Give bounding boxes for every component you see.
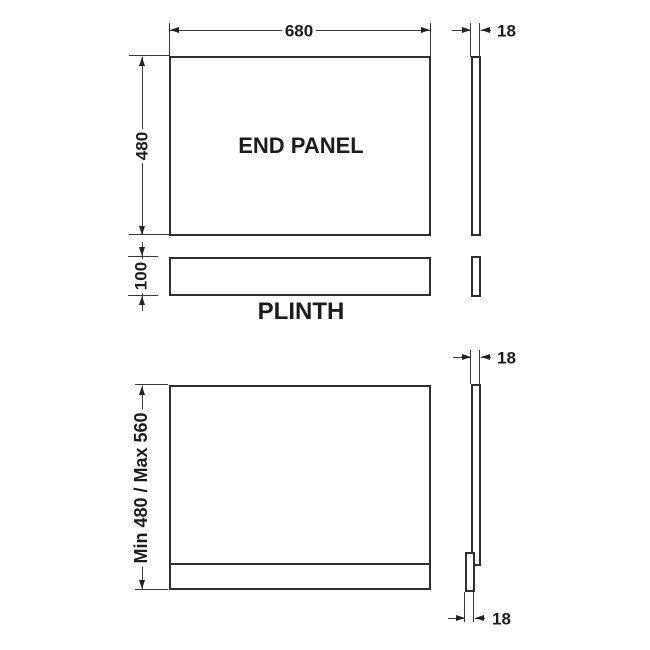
adjustable-panel-plinth-divider-line	[170, 563, 430, 565]
dim-plinth-arrow-bottom	[139, 296, 145, 305]
dim-range-arrow-bottom	[139, 580, 145, 589]
dim-height-arrow-top	[139, 57, 145, 66]
dim-plinth-thickness-arrow-left	[456, 615, 465, 621]
dim-plinth-thickness-arrow-right	[475, 615, 484, 621]
end-panel-technical-drawing: END PANEL 680 480 18 PLINTH 100 Min 480 …	[0, 0, 650, 650]
dim-thickness-label: 18	[494, 22, 519, 41]
plinth-front-rect	[169, 257, 431, 296]
plinth-side-rect	[471, 256, 481, 297]
adjustable-plinth-side-rect	[465, 552, 475, 592]
dim-range-ext-tick-bottom	[135, 589, 168, 590]
plinth-label: PLINTH	[258, 300, 345, 324]
end-panel-side-rect	[471, 56, 481, 236]
dim-width-label: 680	[282, 22, 316, 41]
dim-width-ext-line-right	[430, 23, 431, 56]
dim-thickness-arrow-left	[462, 27, 471, 33]
dim-height-label: 480	[133, 129, 152, 163]
dim-height-arrow-bottom	[139, 226, 145, 235]
adjustable-panel-side-rect	[471, 384, 481, 566]
adjustable-panel-front-rect	[169, 385, 431, 590]
dim-height-ext-tick-top	[129, 55, 169, 56]
dim-panel-thickness-arrow-right	[481, 354, 490, 360]
dim-thickness-ext-right	[479, 23, 480, 57]
dim-thickness-arrow-right	[481, 27, 490, 33]
dim-panel-thickness-ext-right	[479, 350, 480, 384]
dim-width-arrow-left	[170, 27, 179, 33]
dim-width-arrow-right	[421, 27, 430, 33]
end-panel-label: END PANEL	[238, 135, 364, 157]
dim-panel-thickness-label: 18	[494, 349, 519, 368]
dim-plinth-ext-tick-top	[128, 256, 158, 257]
dim-panel-thickness-arrow-left	[462, 354, 471, 360]
dim-plinth-arrow-top	[139, 247, 145, 256]
dim-plinth-height-label: 100	[132, 259, 151, 293]
dim-range-label: Min 480 / Max 560	[131, 409, 151, 566]
dim-plinth-thickness-ext-right	[473, 592, 474, 622]
dim-plinth-thickness-label: 18	[489, 610, 514, 629]
dim-range-ext-tick-top	[135, 384, 168, 385]
dim-range-arrow-top	[139, 386, 145, 395]
dim-height-ext-tick-bottom	[129, 234, 169, 235]
